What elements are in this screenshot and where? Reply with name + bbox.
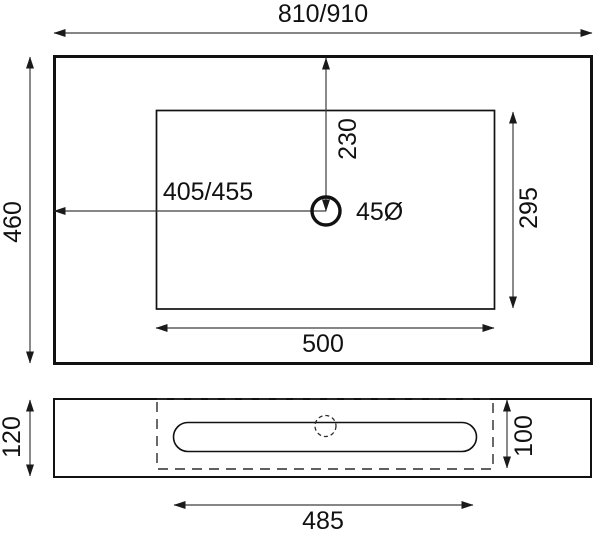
washbasin-dimension-drawing: 810/910 460 405/455 230 45Ø <box>0 0 600 537</box>
dimension-label-basin-depth: 295 <box>515 187 543 229</box>
dimension-label-drain-diameter: 45Ø <box>356 198 403 226</box>
dimension-label-basin-width: 500 <box>302 330 344 358</box>
dimension-label-panel-height: 120 <box>0 416 26 458</box>
dimension-label-recess-height: 100 <box>510 415 538 457</box>
technical-drawing-canvas: 810/910 460 405/455 230 45Ø <box>0 0 600 537</box>
dimension-label-overall-depth: 460 <box>0 201 27 243</box>
dimension-label-overall-width: 810/910 <box>278 0 368 28</box>
dimension-label-slot-width: 485 <box>302 507 344 535</box>
dimension-label-drain-offset-front: 230 <box>334 118 362 160</box>
dimension-label-drain-offset-left: 405/455 <box>163 178 253 206</box>
